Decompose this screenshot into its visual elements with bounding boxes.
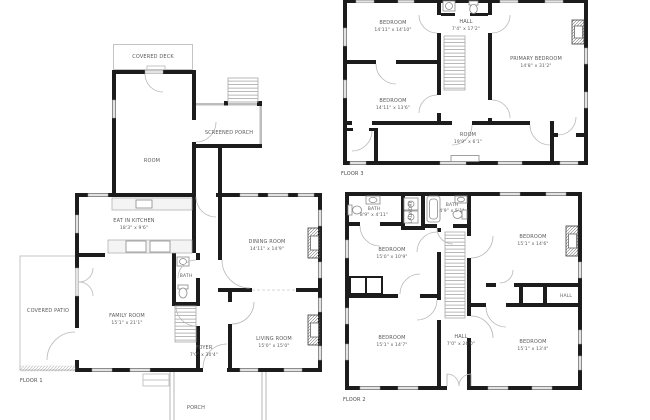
room-label-bedroom-left: BEDROOM [378, 247, 405, 253]
stairs-icon [175, 306, 196, 342]
room-label-porch: PORCH [187, 405, 205, 411]
room-label-screened-porch: SCREENED PORCH [205, 130, 253, 136]
room-label-bedroom-bottom-right: BEDROOM [519, 339, 546, 345]
room-dims-bath-mid: 4'9" x 5'1" [439, 208, 464, 214]
room-label-bath-mid: BATH [446, 202, 459, 208]
room-label-bedroom-right-top: BEDROOM [519, 234, 546, 240]
room-label-bedroom-lower: BEDROOM [379, 98, 406, 104]
floor3-plan: BEDROOM 14'11" x 14'10" HALL 7'4" x 17'2… [341, 0, 588, 177]
stairs-icon [445, 232, 465, 318]
room-dims-bedroom-bottom-left: 15'1" x 14'7" [376, 342, 407, 348]
room-label-bath-f1: BATH [180, 273, 193, 279]
room-dims-eat-in-kitchen: 18'3" x 9'6" [120, 225, 148, 231]
room-dims-bedroom-top: 14'11" x 14'10" [374, 27, 411, 33]
room-label-family-room: FAMILY ROOM [109, 313, 145, 319]
room-label-laundry: LAUNDRY [408, 201, 414, 224]
room-dims-room-f3: 19'9" x 6'1" [454, 139, 482, 145]
room-dims-living-room: 15'0" x 15'0" [258, 343, 289, 349]
room-label-dining-room: DINING ROOM [248, 239, 285, 245]
floorplan-drawing: COVERED DECK ROOM SCREENED PORCH EAT IN … [0, 0, 650, 420]
room-label-foyer: FOYER [196, 345, 213, 351]
floor1-plan: COVERED DECK ROOM SCREENED PORCH EAT IN … [20, 45, 322, 420]
floorplan-canvas: COVERED DECK ROOM SCREENED PORCH EAT IN … [0, 0, 650, 420]
toilet-icon [348, 205, 352, 215]
floor2-tag: FLOOR 2 [343, 397, 366, 403]
room-label-room: ROOM [144, 158, 160, 164]
room-label-hall-f2: HALL [454, 334, 467, 340]
room-dims-foyer: 7'0" x 30'4" [190, 352, 218, 358]
fireplace-icon [572, 20, 584, 44]
closet-left [350, 277, 382, 294]
room-label-living-room: LIVING ROOM [256, 336, 292, 342]
room-label-bedroom-bottom-left: BEDROOM [378, 335, 405, 341]
room-label-bath-left: BATH [368, 206, 381, 212]
fireplace-icon [566, 226, 578, 256]
room-label-hall-small: HALL [560, 293, 572, 299]
room-dims-hall-f2: 7'0" x 26'0" [447, 341, 475, 347]
room-label-primary-bedroom: PRIMARY BEDROOM [510, 56, 562, 62]
exterior-stairs-icon [228, 78, 258, 102]
room-dims-bedroom-right-top: 15'1" x 14'6" [517, 241, 548, 247]
door-arcs [47, 74, 296, 368]
room-dims-primary-bedroom: 14'8" x 31'2" [520, 63, 551, 69]
room-dims-family-room: 15'1" x 21'1" [111, 320, 142, 326]
floor3-tag: FLOOR 3 [341, 171, 364, 177]
floor2-plan: BATH 8'9" x 4'11" LAUNDRY BATH 4'9" x 5'… [343, 192, 582, 403]
room-label-room-f3: ROOM [460, 132, 476, 138]
room-dims-bedroom-left: 15'0" x 10'9" [376, 254, 407, 260]
room-label-bedroom-top: BEDROOM [379, 20, 406, 26]
room-label-covered-deck: COVERED DECK [132, 54, 174, 60]
room-dims-bedroom-lower: 14'11" x 13'6" [376, 105, 410, 111]
stairs-icon [444, 36, 465, 90]
room-label-eat-in-kitchen: EAT IN KITCHEN [113, 218, 155, 224]
room-label-hall-f3: HALL [459, 19, 472, 25]
floor1-tag: FLOOR 1 [20, 378, 43, 384]
walls [75, 70, 322, 372]
porch-columns [143, 372, 266, 420]
room-dims-bedroom-bottom-right: 15'1" x 13'4" [517, 346, 548, 352]
room-dims-hall-f3: 7'4" x 17'2" [452, 26, 480, 32]
room-dims-bath-left: 8'9" x 4'11" [360, 212, 388, 218]
room-dims-dining-room: 14'11" x 14'9" [250, 246, 284, 252]
room-label-covered-patio: COVERED PATIO [27, 308, 69, 314]
